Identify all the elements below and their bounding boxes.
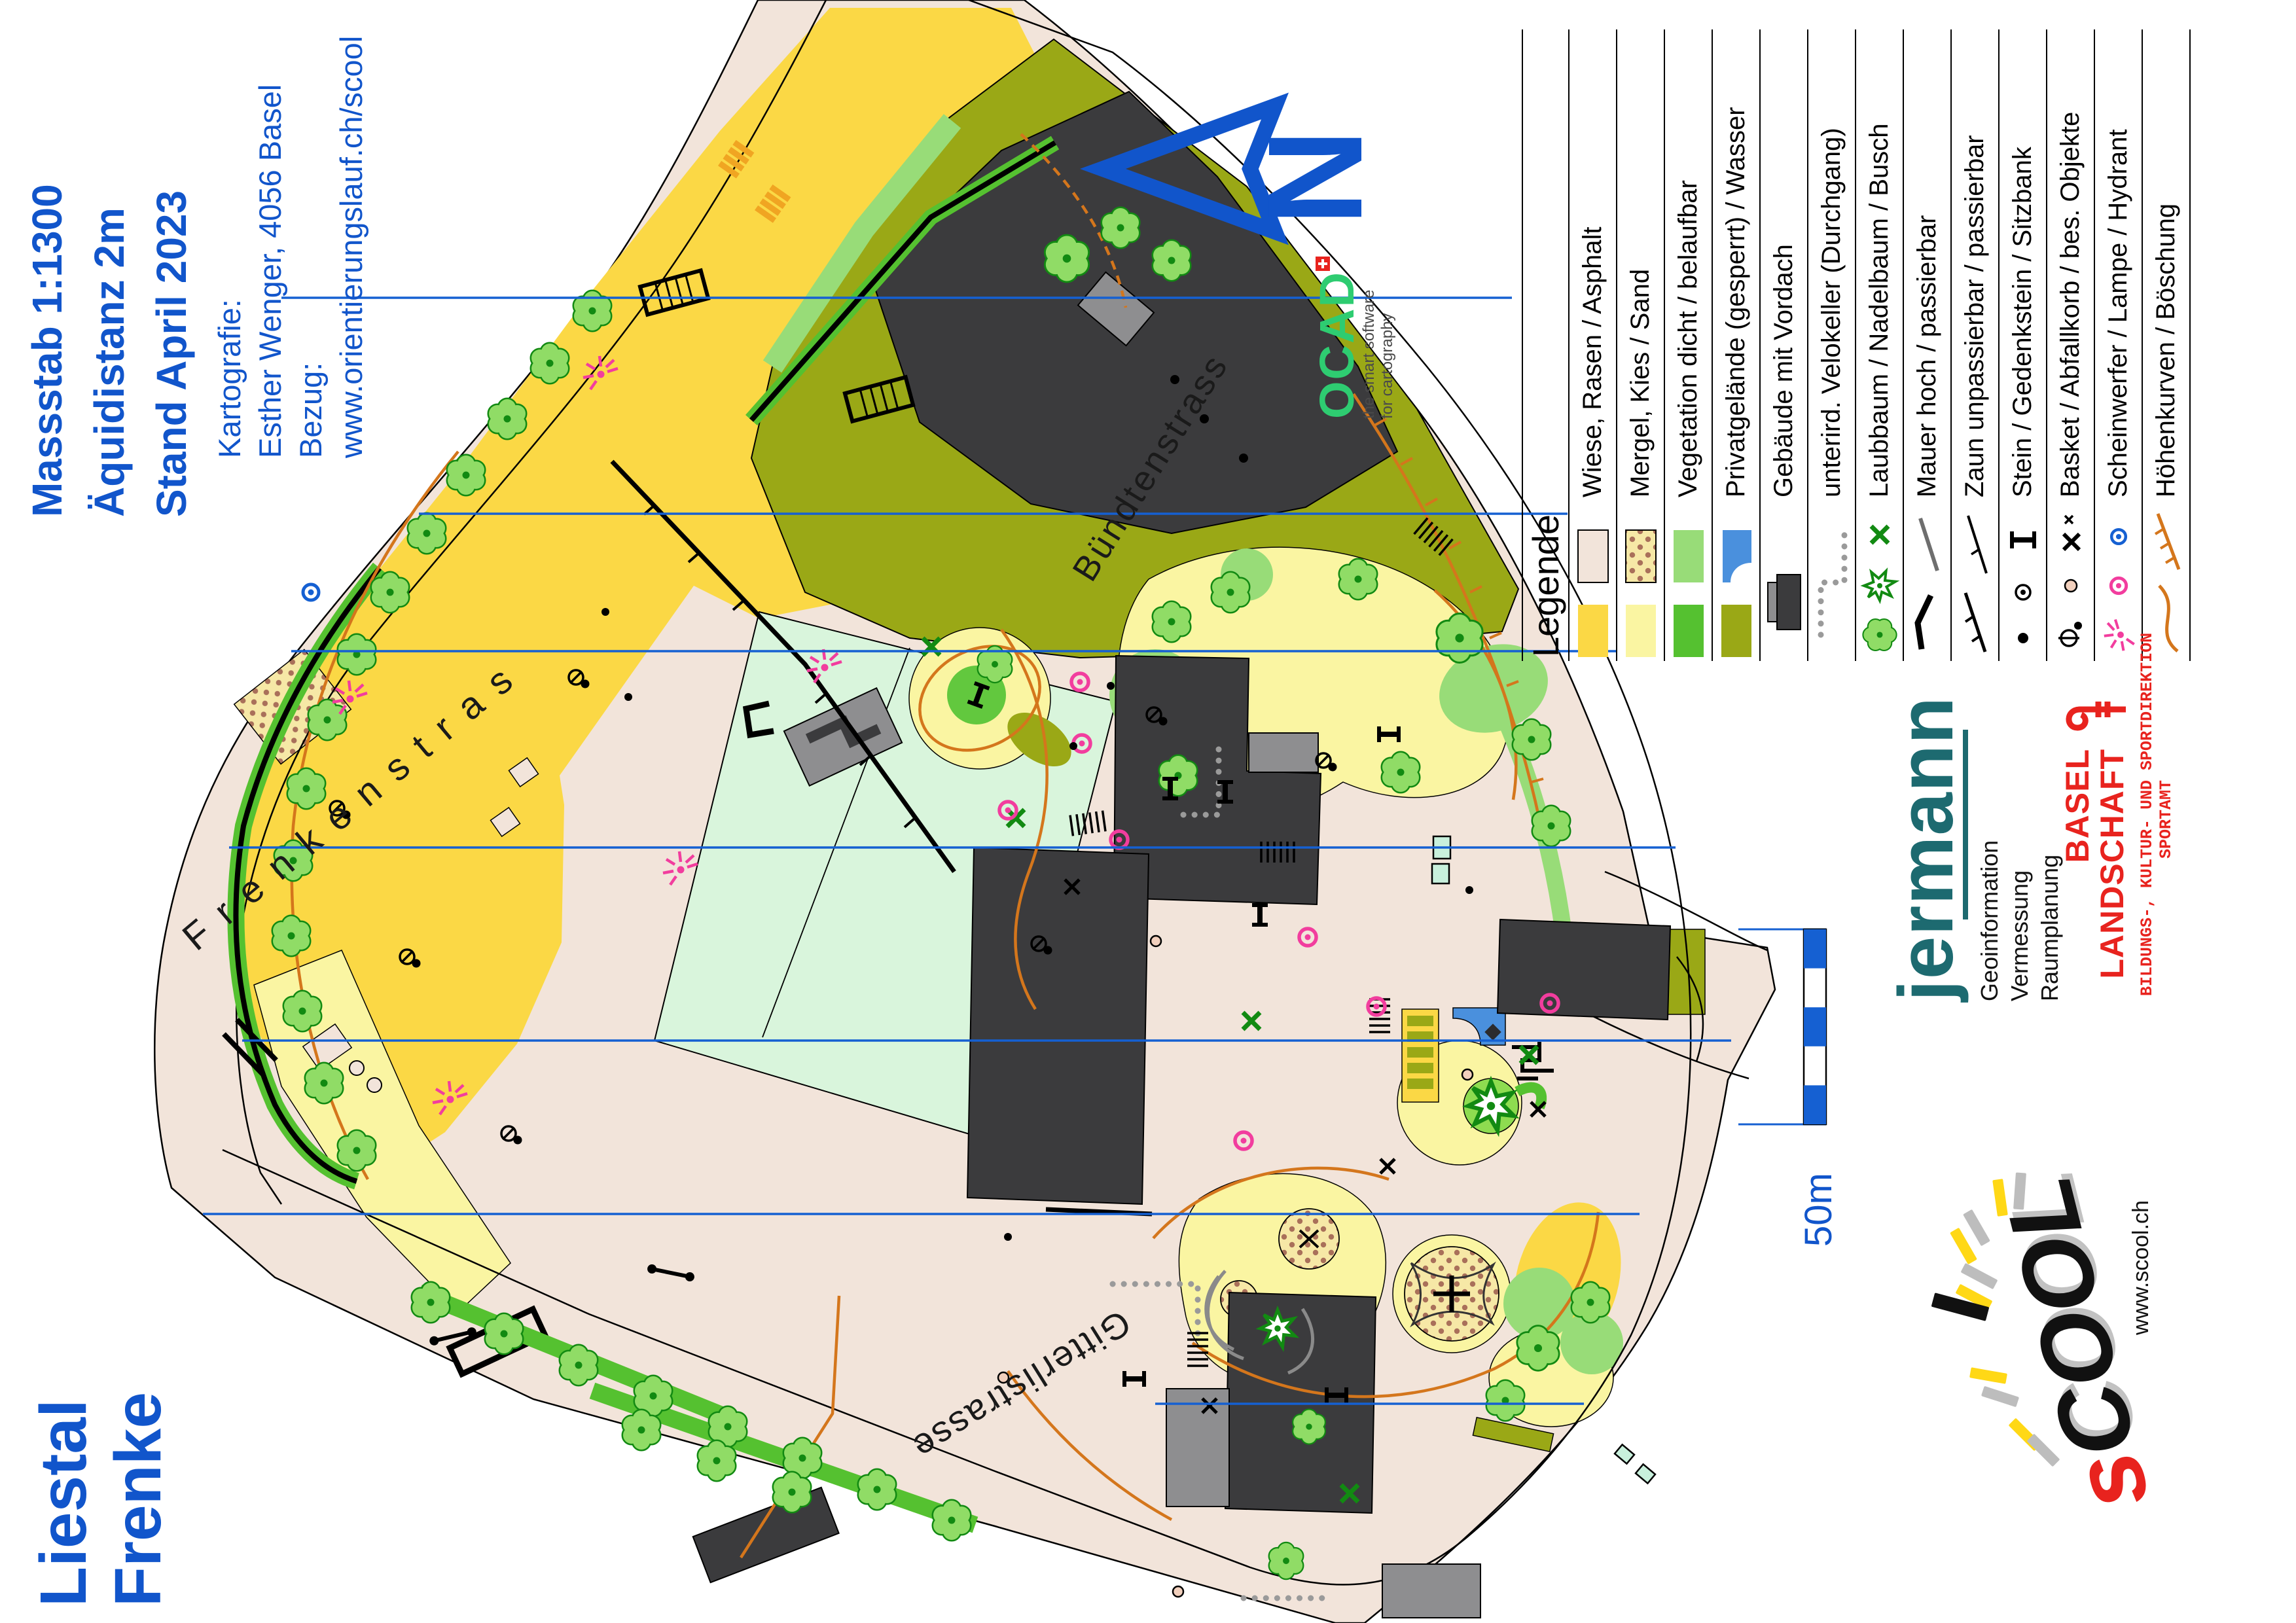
credit-line: Kartografie: xyxy=(209,0,250,458)
scool-url: www.scool.ch xyxy=(2128,1200,2154,1335)
legend-symbol-wiese-asphalt-icon xyxy=(1573,497,1613,661)
legend-symbol-velokeller-icon xyxy=(1812,497,1852,661)
basel-line1: BASEL xyxy=(2060,749,2095,996)
swiss-cross-icon xyxy=(1316,257,1330,271)
legend-symbol-baum-busch-icon xyxy=(1859,497,1900,661)
legend-row-mergel: Mergel, Kies / Sand xyxy=(1617,29,1665,661)
legend-row-gebaeude: Gebäude mit Vordach xyxy=(1761,29,1808,661)
scale-label: 50m xyxy=(1797,1173,1840,1247)
legend-row-scheinwerfer: Scheinwerfer / Lampe / Hydrant xyxy=(2095,29,2143,661)
legend-row-zaun: Zaun unpassierbar / passierbar xyxy=(1952,29,2000,661)
ocad-wordmark: OCAD xyxy=(1310,271,1364,419)
ray-icon xyxy=(1961,1263,1998,1289)
ocad-tagline2: for cartography xyxy=(1378,249,1397,419)
jermann-service: Geoinformation xyxy=(1975,674,2005,1001)
legend-symbol-basket-objekte-icon xyxy=(2051,497,2091,661)
legend-row-stein: Stein / Gedenkstein / Sitzbank xyxy=(2000,29,2047,661)
jermann-service: Vermessung xyxy=(2005,674,2035,1001)
legend-symbol-stein-sitzbank-icon xyxy=(2003,497,2043,661)
legend-row-basket: Basket / Abfallkorb / bes. Objekte xyxy=(2047,29,2095,661)
legend-row-wiese: Wiese, Rasen / Asphalt xyxy=(1570,29,1617,661)
north-arrow-label: N xyxy=(1240,129,1390,226)
legend-heading: Legende xyxy=(1522,29,1570,661)
credit-line: Esther Wenger, 4056 Basel xyxy=(250,0,291,458)
basel-landschaft-logo: BASEL LANDSCHAFT BILDUNGS-, KULTUR- UND … xyxy=(2060,688,2172,996)
ray-icon xyxy=(1969,1367,2007,1383)
map-title-line2: Frenke xyxy=(101,1293,175,1607)
scale-line: Massstab 1:1300 xyxy=(16,131,79,517)
status-line: Stand April 2023 xyxy=(141,131,203,517)
map-title-line1: Liestal xyxy=(26,1293,101,1607)
legend-symbol-zaun-icon xyxy=(1955,497,1996,661)
legend-row-mauer: Mauer hoch / passierbar xyxy=(1904,29,1952,661)
jermann-logo: jermann Geoinformation Vermessung Raumpl… xyxy=(1893,674,2037,1001)
scool-logo: sCOOL www.scool.ch xyxy=(1957,1165,2186,1531)
legend: Legende Wiese, Rasen / Asphalt Mergel, K… xyxy=(1522,29,2193,661)
legend-symbol-gebaeude-icon xyxy=(1764,497,1804,661)
map-sheet: Bündtenstrass Frenkenstras Gitterlistras… xyxy=(0,0,2296,1623)
legend-symbol-kies-sand-icon xyxy=(1621,497,1661,661)
map-meta-title: Massstab 1:1300 Äquidistanz 2m Stand Apr… xyxy=(16,131,206,517)
legend-symbol-vegetation-icon xyxy=(1668,497,1709,661)
legend-row-vegetation: Vegetation dicht / belaufbar xyxy=(1665,29,1713,661)
ocad-logo: OCAD the smart software for cartography xyxy=(1314,249,1388,419)
legend-row-baum: Laubbaum / Nadelbaum / Busch xyxy=(1856,29,1904,661)
credits: Kartografie: Esther Wenger, 4056 Basel B… xyxy=(209,0,376,458)
legend-symbol-lampe-hydrant-icon xyxy=(2098,497,2139,661)
jermann-wordmark: jermann xyxy=(1893,674,1959,1001)
basel-line2: LANDSCHAFT xyxy=(2095,749,2130,996)
equidistance-line: Äquidistanz 2m xyxy=(79,131,141,517)
ray-icon xyxy=(1981,1386,2019,1408)
basel-office: SPORTAMT xyxy=(2157,688,2176,859)
credit-line: www.orientierungslauf.ch/scool xyxy=(331,0,372,458)
legend-symbol-privat-wasser-icon xyxy=(1716,497,1757,661)
legend-row-hoehenkurven: Höhenkurven / Böschung xyxy=(2143,29,2191,661)
legend-row-privat: Privatgelände (gesperrt) / Wasser xyxy=(1713,29,1761,661)
credit-line: Bezug: xyxy=(291,0,331,458)
basel-coat-of-arms-icon xyxy=(2060,688,2132,741)
basel-dept: BILDUNGS-, KULTUR- UND SPORTDIREKTION xyxy=(2138,688,2157,996)
legend-row-velokeller: unterird. Velokeller (Durchgang) xyxy=(1808,29,1856,661)
map-title: Liestal Frenke xyxy=(26,1293,180,1607)
legend-symbol-mauer-icon xyxy=(1907,497,1948,661)
